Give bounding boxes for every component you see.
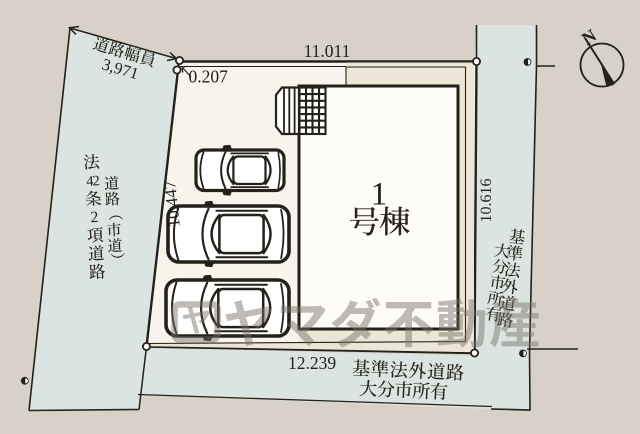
svg-text:12.239: 12.239 <box>288 353 336 373</box>
svg-text:11.011: 11.011 <box>304 41 351 61</box>
svg-text:1: 1 <box>371 177 388 213</box>
svg-text:0.207: 0.207 <box>189 67 229 87</box>
svg-text:10.616: 10.616 <box>478 179 495 223</box>
svg-text:2: 2 <box>90 209 99 226</box>
svg-text:42: 42 <box>86 173 100 190</box>
